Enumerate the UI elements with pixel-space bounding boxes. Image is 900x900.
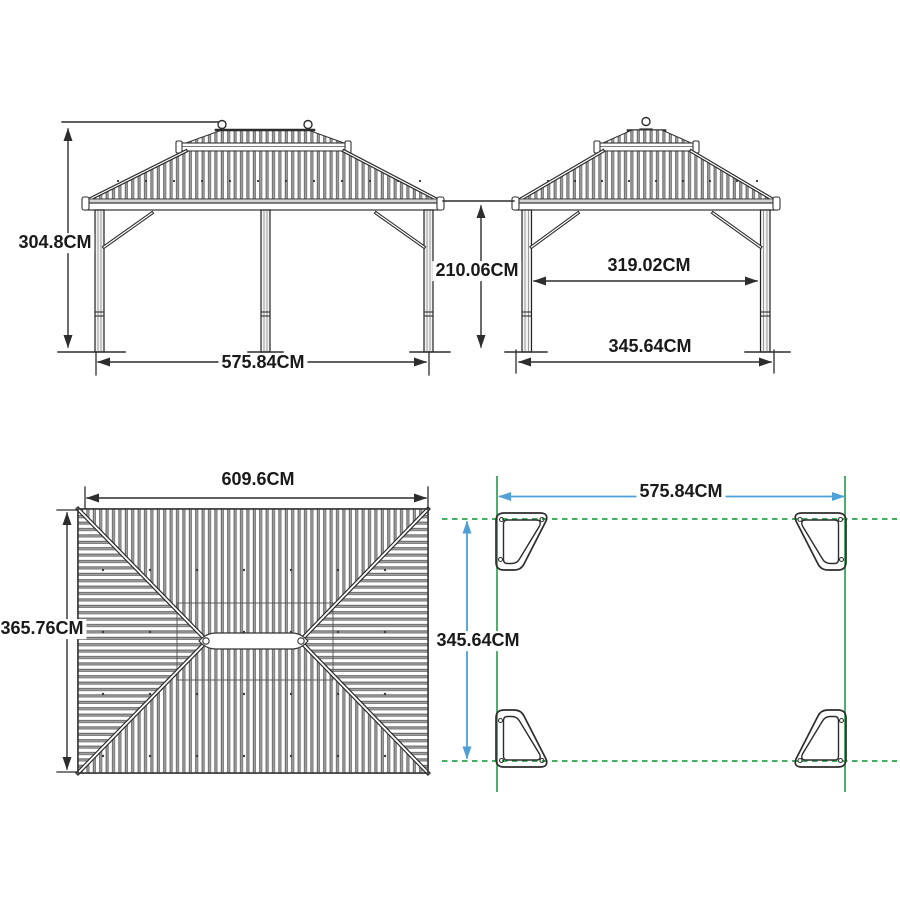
side-outer-width-dimension-label: 345.64CM <box>605 337 694 357</box>
ridge-cap <box>199 633 308 649</box>
front-posts <box>95 210 433 352</box>
front-elevation-view <box>58 121 450 376</box>
post-centerline-vertical <box>497 476 845 792</box>
roof-finial <box>304 121 312 129</box>
roof-width-dimension-label: 609.6CM <box>218 470 297 490</box>
side-post-height-dimension-label: 210.06CM <box>432 261 521 281</box>
side-inner-width-dimension-label: 319.02CM <box>604 256 693 276</box>
footprint-depth-dimension-label: 345.64CM <box>433 631 522 651</box>
roof-plan-view <box>57 487 428 773</box>
technical-drawing <box>0 0 900 900</box>
front-roof <box>82 121 444 211</box>
front-height-dimension-label: 304.8CM <box>15 233 94 253</box>
side-roof <box>512 118 780 211</box>
roof-finial <box>218 121 226 129</box>
diagram-canvas: 304.8CM 575.84CM 210.06CM 319.02CM 345.6… <box>0 0 900 900</box>
roof-finial <box>642 118 650 126</box>
side-elevation-view <box>443 118 790 374</box>
footprint-width-dimension-label: 575.84CM <box>636 482 725 502</box>
roof-depth-dimension-label: 365.76CM <box>0 619 87 639</box>
front-width-dimension-label: 575.84CM <box>218 353 307 373</box>
